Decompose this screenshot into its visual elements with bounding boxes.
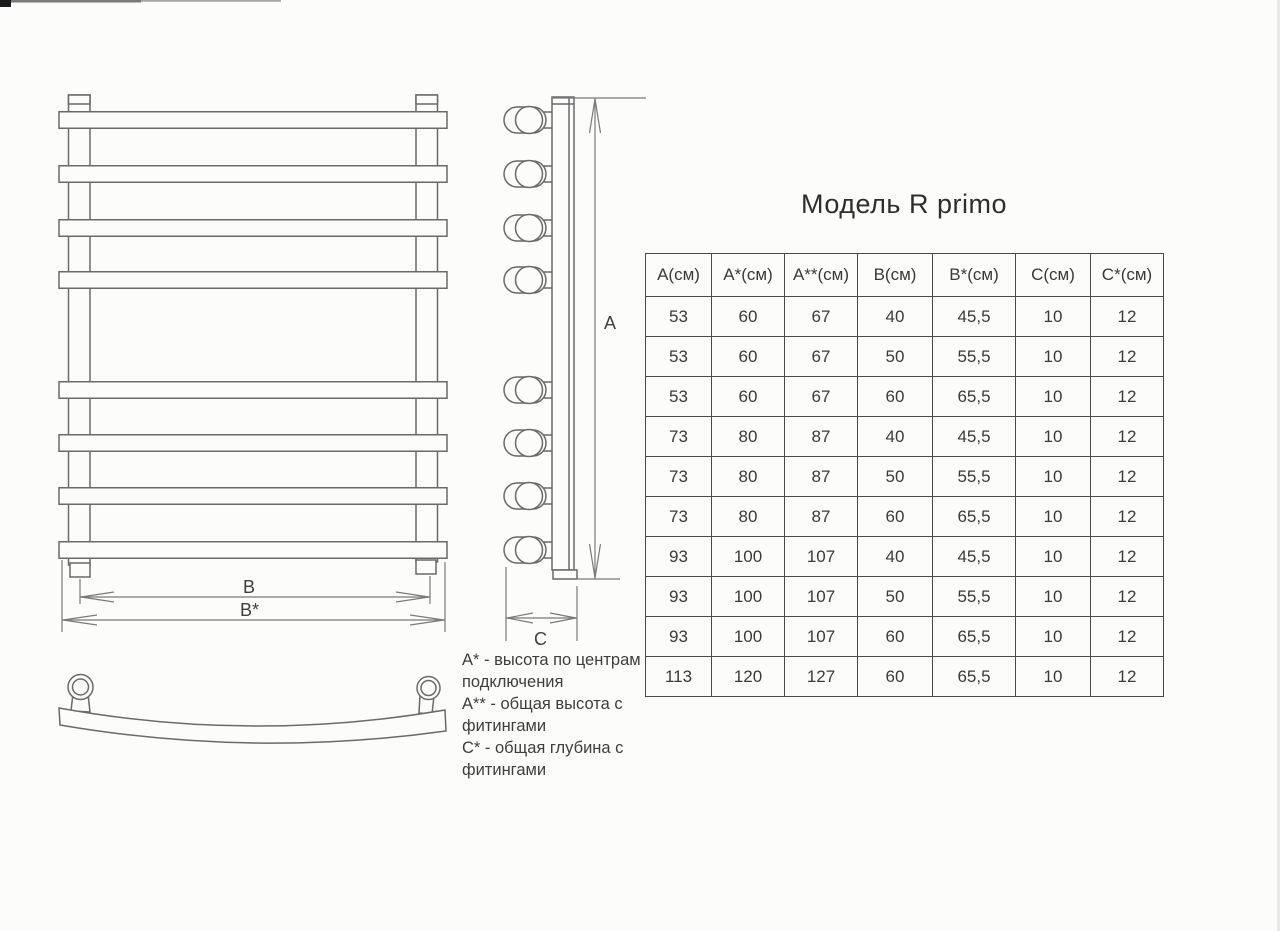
towel-bar	[59, 272, 447, 289]
table-cell: 107	[785, 617, 858, 657]
pipe-connector	[504, 161, 554, 188]
table-cell: 45,5	[933, 417, 1016, 457]
table-cell: 50	[858, 457, 933, 497]
table-cell: 12	[1091, 617, 1164, 657]
table-cell: 87	[785, 457, 858, 497]
towel-bar	[59, 382, 447, 399]
table-cell: 60	[858, 377, 933, 417]
side-post	[552, 97, 574, 570]
dim-label-c: С	[534, 629, 547, 649]
col-header: С*(см)	[1091, 254, 1164, 297]
table-cell: 93	[646, 577, 712, 617]
pipe-connector	[504, 267, 554, 294]
pipe-connector	[504, 537, 554, 564]
table-cell: 12	[1091, 457, 1164, 497]
pipe-connector	[504, 430, 554, 457]
table-cell: 12	[1091, 297, 1164, 337]
col-header: А(см)	[646, 254, 712, 297]
left-post-cap	[69, 95, 91, 104]
table-cell: 10	[1016, 657, 1091, 697]
table-cell: 67	[785, 337, 858, 377]
towel-bar	[59, 220, 447, 237]
table-cell: 53	[646, 337, 712, 377]
legend-item: А* - высота по центрам подключения	[462, 649, 654, 693]
table-cell: 55,5	[933, 577, 1016, 617]
front-view	[59, 95, 447, 577]
pipe-connector	[504, 483, 554, 510]
curved-bar	[59, 708, 446, 743]
table-cell: 55,5	[933, 337, 1016, 377]
table-cell: 45,5	[933, 297, 1016, 337]
table-cell: 10	[1016, 577, 1091, 617]
towel-bar	[59, 435, 447, 452]
table-cell: 10	[1016, 377, 1091, 417]
towel-bar	[59, 112, 447, 129]
table-cell: 50	[858, 577, 933, 617]
table-cell: 100	[712, 537, 785, 577]
table-cell: 73	[646, 457, 712, 497]
table-cell: 127	[785, 657, 858, 697]
table-row: 93 100 107 40 45,5 10 12	[646, 537, 1164, 577]
table-row: 53 60 67 40 45,5 10 12	[646, 297, 1164, 337]
table-cell: 87	[785, 497, 858, 537]
side-view	[504, 97, 577, 579]
table-cell: 107	[785, 537, 858, 577]
right-post-foot	[416, 560, 436, 574]
table-cell: 10	[1016, 617, 1091, 657]
table-cell: 10	[1016, 297, 1091, 337]
table-cell: 93	[646, 537, 712, 577]
table-cell: 73	[646, 417, 712, 457]
table-cell: 12	[1091, 497, 1164, 537]
col-header: В*(см)	[933, 254, 1016, 297]
table-cell: 80	[712, 497, 785, 537]
legend: А* - высота по центрам подключения А** -…	[462, 649, 654, 781]
table-cell: 65,5	[933, 377, 1016, 417]
table-cell: 60	[858, 657, 933, 697]
table-cell: 10	[1016, 497, 1091, 537]
table-cell: 65,5	[933, 497, 1016, 537]
table-row: 53 60 67 50 55,5 10 12	[646, 337, 1164, 377]
col-header: А*(см)	[712, 254, 785, 297]
table-row: 53 60 67 60 65,5 10 12	[646, 377, 1164, 417]
legend-item: С* - общая глубина с фитингами	[462, 737, 654, 781]
table-cell: 60	[712, 337, 785, 377]
table-cell: 73	[646, 497, 712, 537]
table-row: 73 80 87 40 45,5 10 12	[646, 417, 1164, 457]
towel-bar	[59, 542, 447, 559]
table-cell: 40	[858, 417, 933, 457]
pipe-connector	[504, 377, 554, 404]
table-cell: 10	[1016, 537, 1091, 577]
table-cell: 40	[858, 297, 933, 337]
top-view-curved-bar	[59, 675, 446, 744]
table-cell: 12	[1091, 337, 1164, 377]
dim-label-b-star: В*	[240, 600, 259, 620]
table-cell: 12	[1091, 377, 1164, 417]
table-cell: 53	[646, 377, 712, 417]
table-cell: 45,5	[933, 537, 1016, 577]
table-cell: 93	[646, 617, 712, 657]
table-cell: 53	[646, 297, 712, 337]
table-cell: 100	[712, 577, 785, 617]
legend-item: А** - общая высота с фитингами	[462, 693, 654, 737]
left-post-foot	[70, 563, 90, 577]
table-cell: 65,5	[933, 617, 1016, 657]
col-header: А**(см)	[785, 254, 858, 297]
table-cell: 10	[1016, 457, 1091, 497]
col-header: В(см)	[858, 254, 933, 297]
table-row: 93 100 107 50 55,5 10 12	[646, 577, 1164, 617]
table-header-row: А(см) А*(см) А**(см) В(см) В*(см) С(см) …	[646, 254, 1164, 297]
table-cell: 10	[1016, 337, 1091, 377]
table-row: 73 80 87 50 55,5 10 12	[646, 457, 1164, 497]
towel-bar	[59, 488, 447, 505]
towel-bar	[59, 166, 447, 183]
table-cell: 60	[858, 497, 933, 537]
table-row: 73 80 87 60 65,5 10 12	[646, 497, 1164, 537]
table-cell: 10	[1016, 417, 1091, 457]
table-cell: 65,5	[933, 657, 1016, 697]
table-cell: 67	[785, 377, 858, 417]
table-cell: 12	[1091, 537, 1164, 577]
table-cell: 12	[1091, 417, 1164, 457]
table-cell: 87	[785, 417, 858, 457]
side-post-foot	[553, 570, 577, 579]
table-cell: 50	[858, 337, 933, 377]
table-cell: 113	[646, 657, 712, 697]
table-cell: 120	[712, 657, 785, 697]
table-cell: 12	[1091, 657, 1164, 697]
table-row: 93 100 107 60 65,5 10 12	[646, 617, 1164, 657]
page-title: Модель R primo	[645, 189, 1163, 220]
right-post-cap	[416, 95, 438, 104]
dim-label-a: А	[604, 313, 616, 333]
table-cell: 67	[785, 297, 858, 337]
pipe-connector	[504, 107, 554, 134]
table-cell: 60	[712, 377, 785, 417]
table-cell: 107	[785, 577, 858, 617]
col-header: С(см)	[1016, 254, 1091, 297]
table-cell: 55,5	[933, 457, 1016, 497]
table-row: 113 120 127 60 65,5 10 12	[646, 657, 1164, 697]
table-cell: 80	[712, 457, 785, 497]
table-cell: 12	[1091, 577, 1164, 617]
table-cell: 100	[712, 617, 785, 657]
dim-label-b: В	[243, 577, 255, 597]
table-cell: 60	[712, 297, 785, 337]
pipe-connector	[504, 215, 554, 242]
table-cell: 40	[858, 537, 933, 577]
table-cell: 80	[712, 417, 785, 457]
table-cell: 60	[858, 617, 933, 657]
dimensions-table: А(см) А*(см) А**(см) В(см) В*(см) С(см) …	[645, 253, 1164, 697]
